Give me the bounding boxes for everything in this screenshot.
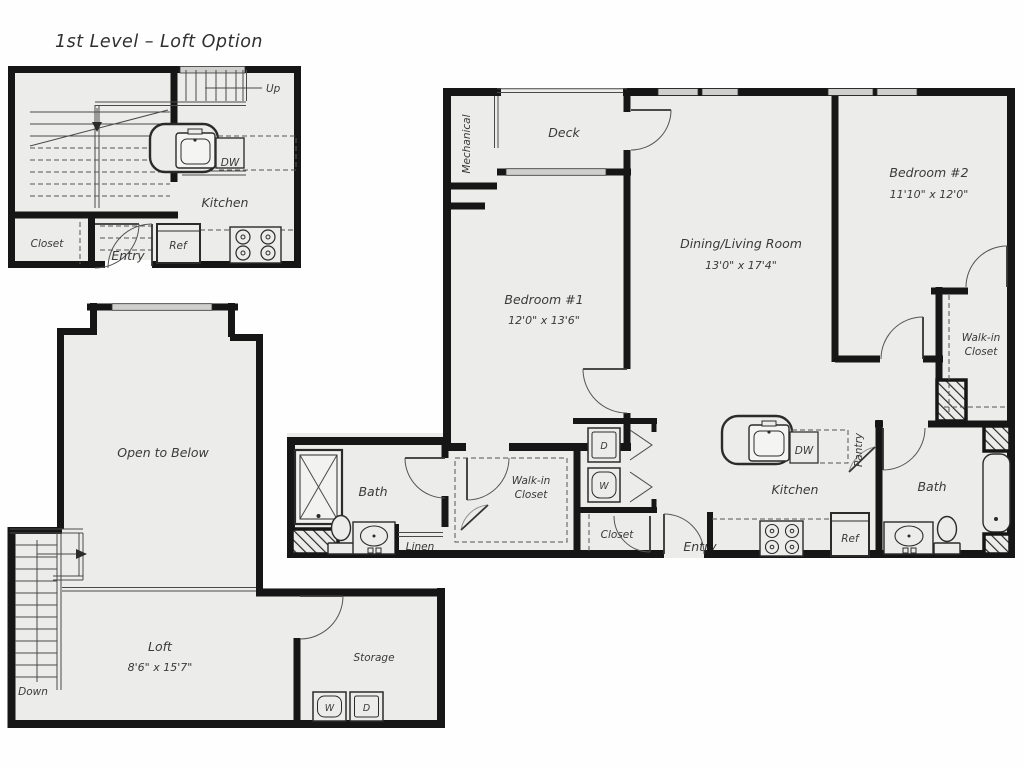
fl-kitchen-label: Kitchen: [202, 195, 249, 210]
fl-dw-label: DW: [221, 157, 240, 169]
storage-washer-label: W: [325, 703, 335, 714]
shower: [295, 450, 342, 524]
fl-kitchen-island: [150, 124, 218, 172]
first-level-plan: Up DW Kitchen Ref Closet: [8, 66, 301, 270]
plan-title: 1st Level – Loft Option: [55, 32, 263, 52]
window: [702, 89, 738, 96]
bedroom2-dims: 11'10" x 12'0": [890, 188, 969, 201]
window: [180, 66, 245, 73]
walkin1-line1: Walk-in: [512, 475, 551, 487]
faucet: [188, 129, 202, 134]
faucet: [762, 421, 776, 426]
living-label: Dining/Living Room: [680, 236, 802, 251]
floor-plan-svg: 1st Level – Loft Option: [0, 0, 1024, 768]
window: [877, 89, 917, 96]
bath1-sink: [353, 522, 395, 554]
fl-closet-label: Closet: [31, 238, 65, 250]
main-unit-plan: Deck Mechanical Bedroom #1 12'0" x 13'6"…: [287, 88, 1015, 558]
window: [658, 89, 698, 96]
window: [828, 89, 873, 96]
washer-label: W: [599, 481, 609, 492]
floor-plan-page: 1st Level – Loft Option: [0, 0, 1024, 768]
bathtub: [983, 454, 1010, 532]
structural-column: [937, 380, 966, 421]
walkin1-line2: Closet: [515, 489, 549, 501]
living-dims: 13'0" x 17'4": [705, 259, 777, 272]
fl-ref-label: Ref: [169, 240, 189, 252]
kitchen-ref-label: Ref: [841, 533, 861, 545]
pantry-label: Pantry: [853, 432, 865, 467]
bath2-label: Bath: [917, 479, 946, 494]
walkin2-line1: Walk-in: [962, 332, 1001, 344]
kitchen-label: Kitchen: [772, 482, 819, 497]
linen-label: Linen: [406, 541, 435, 553]
loft-open-below-label: Open to Below: [117, 445, 209, 460]
fl-entry-label: Entry: [111, 248, 145, 263]
bedroom1-label: Bedroom #1: [504, 292, 583, 307]
window: [112, 304, 212, 311]
window: [506, 169, 606, 176]
mechanical-label: Mechanical: [461, 114, 473, 173]
loft-down-label: Down: [18, 686, 48, 698]
fl-kitchen-sink: [176, 133, 215, 168]
fl-stove: [230, 227, 281, 263]
deck-label: Deck: [548, 125, 580, 140]
loft-dims: 8'6" x 15'7": [128, 661, 193, 674]
bedroom1-dims: 12'0" x 13'6": [508, 314, 580, 327]
fl-up-label: Up: [266, 83, 281, 95]
kitchen-stove: [760, 521, 803, 556]
walkin2-line2: Closet: [965, 346, 999, 358]
kitchen-island: [722, 416, 792, 464]
dryer-label: D: [600, 441, 607, 452]
storage-dryer-label: D: [363, 703, 370, 714]
bath1-label: Bath: [358, 484, 387, 499]
structural-column: [984, 534, 1010, 554]
kitchen-dw-label: DW: [795, 445, 814, 457]
loft-label: Loft: [148, 639, 173, 654]
structural-column: [984, 426, 1010, 451]
bath2-sink: [884, 522, 933, 554]
storage-label: Storage: [353, 652, 394, 664]
bedroom2-label: Bedroom #2: [889, 165, 968, 180]
